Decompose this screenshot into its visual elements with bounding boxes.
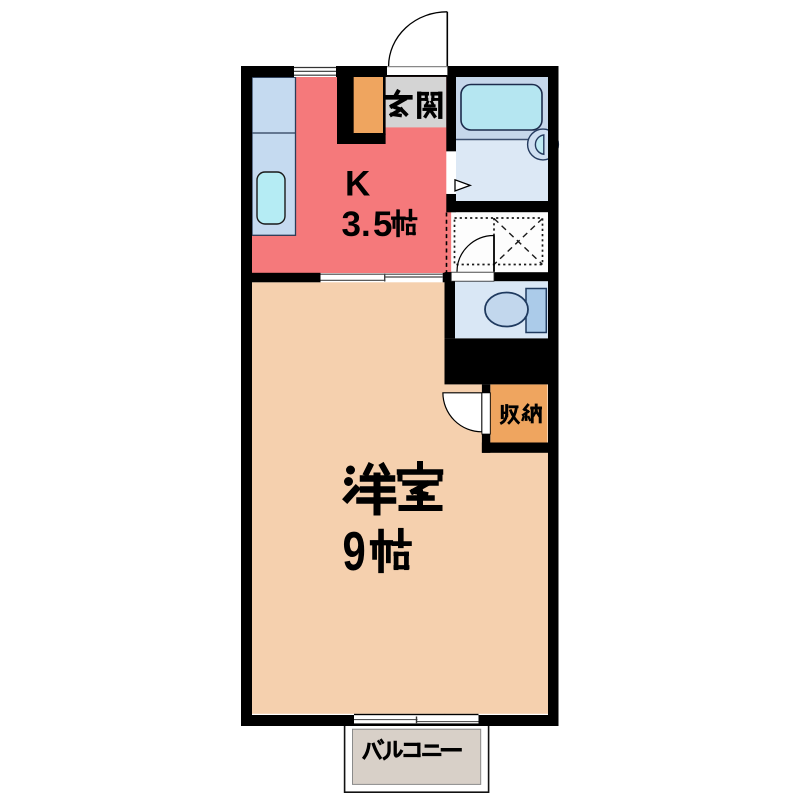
svg-text:K: K [345, 165, 370, 204]
svg-text:9: 9 [343, 522, 366, 583]
svg-text:3.: 3. [342, 205, 371, 244]
svg-text:5: 5 [373, 205, 392, 244]
